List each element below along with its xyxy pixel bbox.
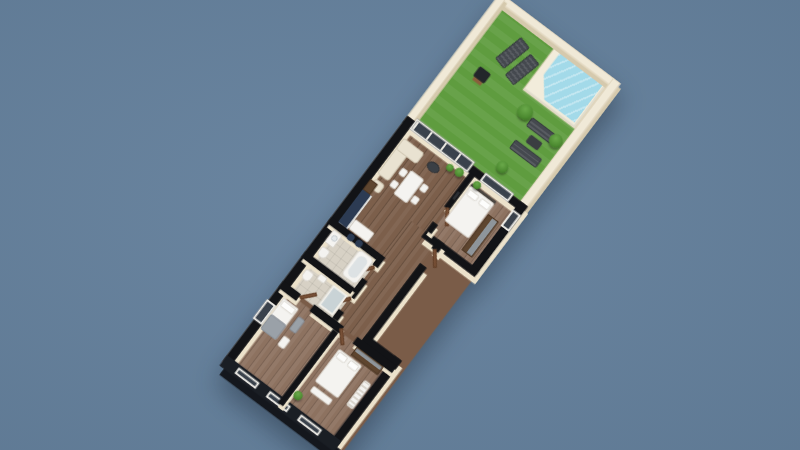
floor-plan (213, 0, 622, 450)
entry-door (433, 249, 437, 268)
scene-background (0, 0, 800, 450)
